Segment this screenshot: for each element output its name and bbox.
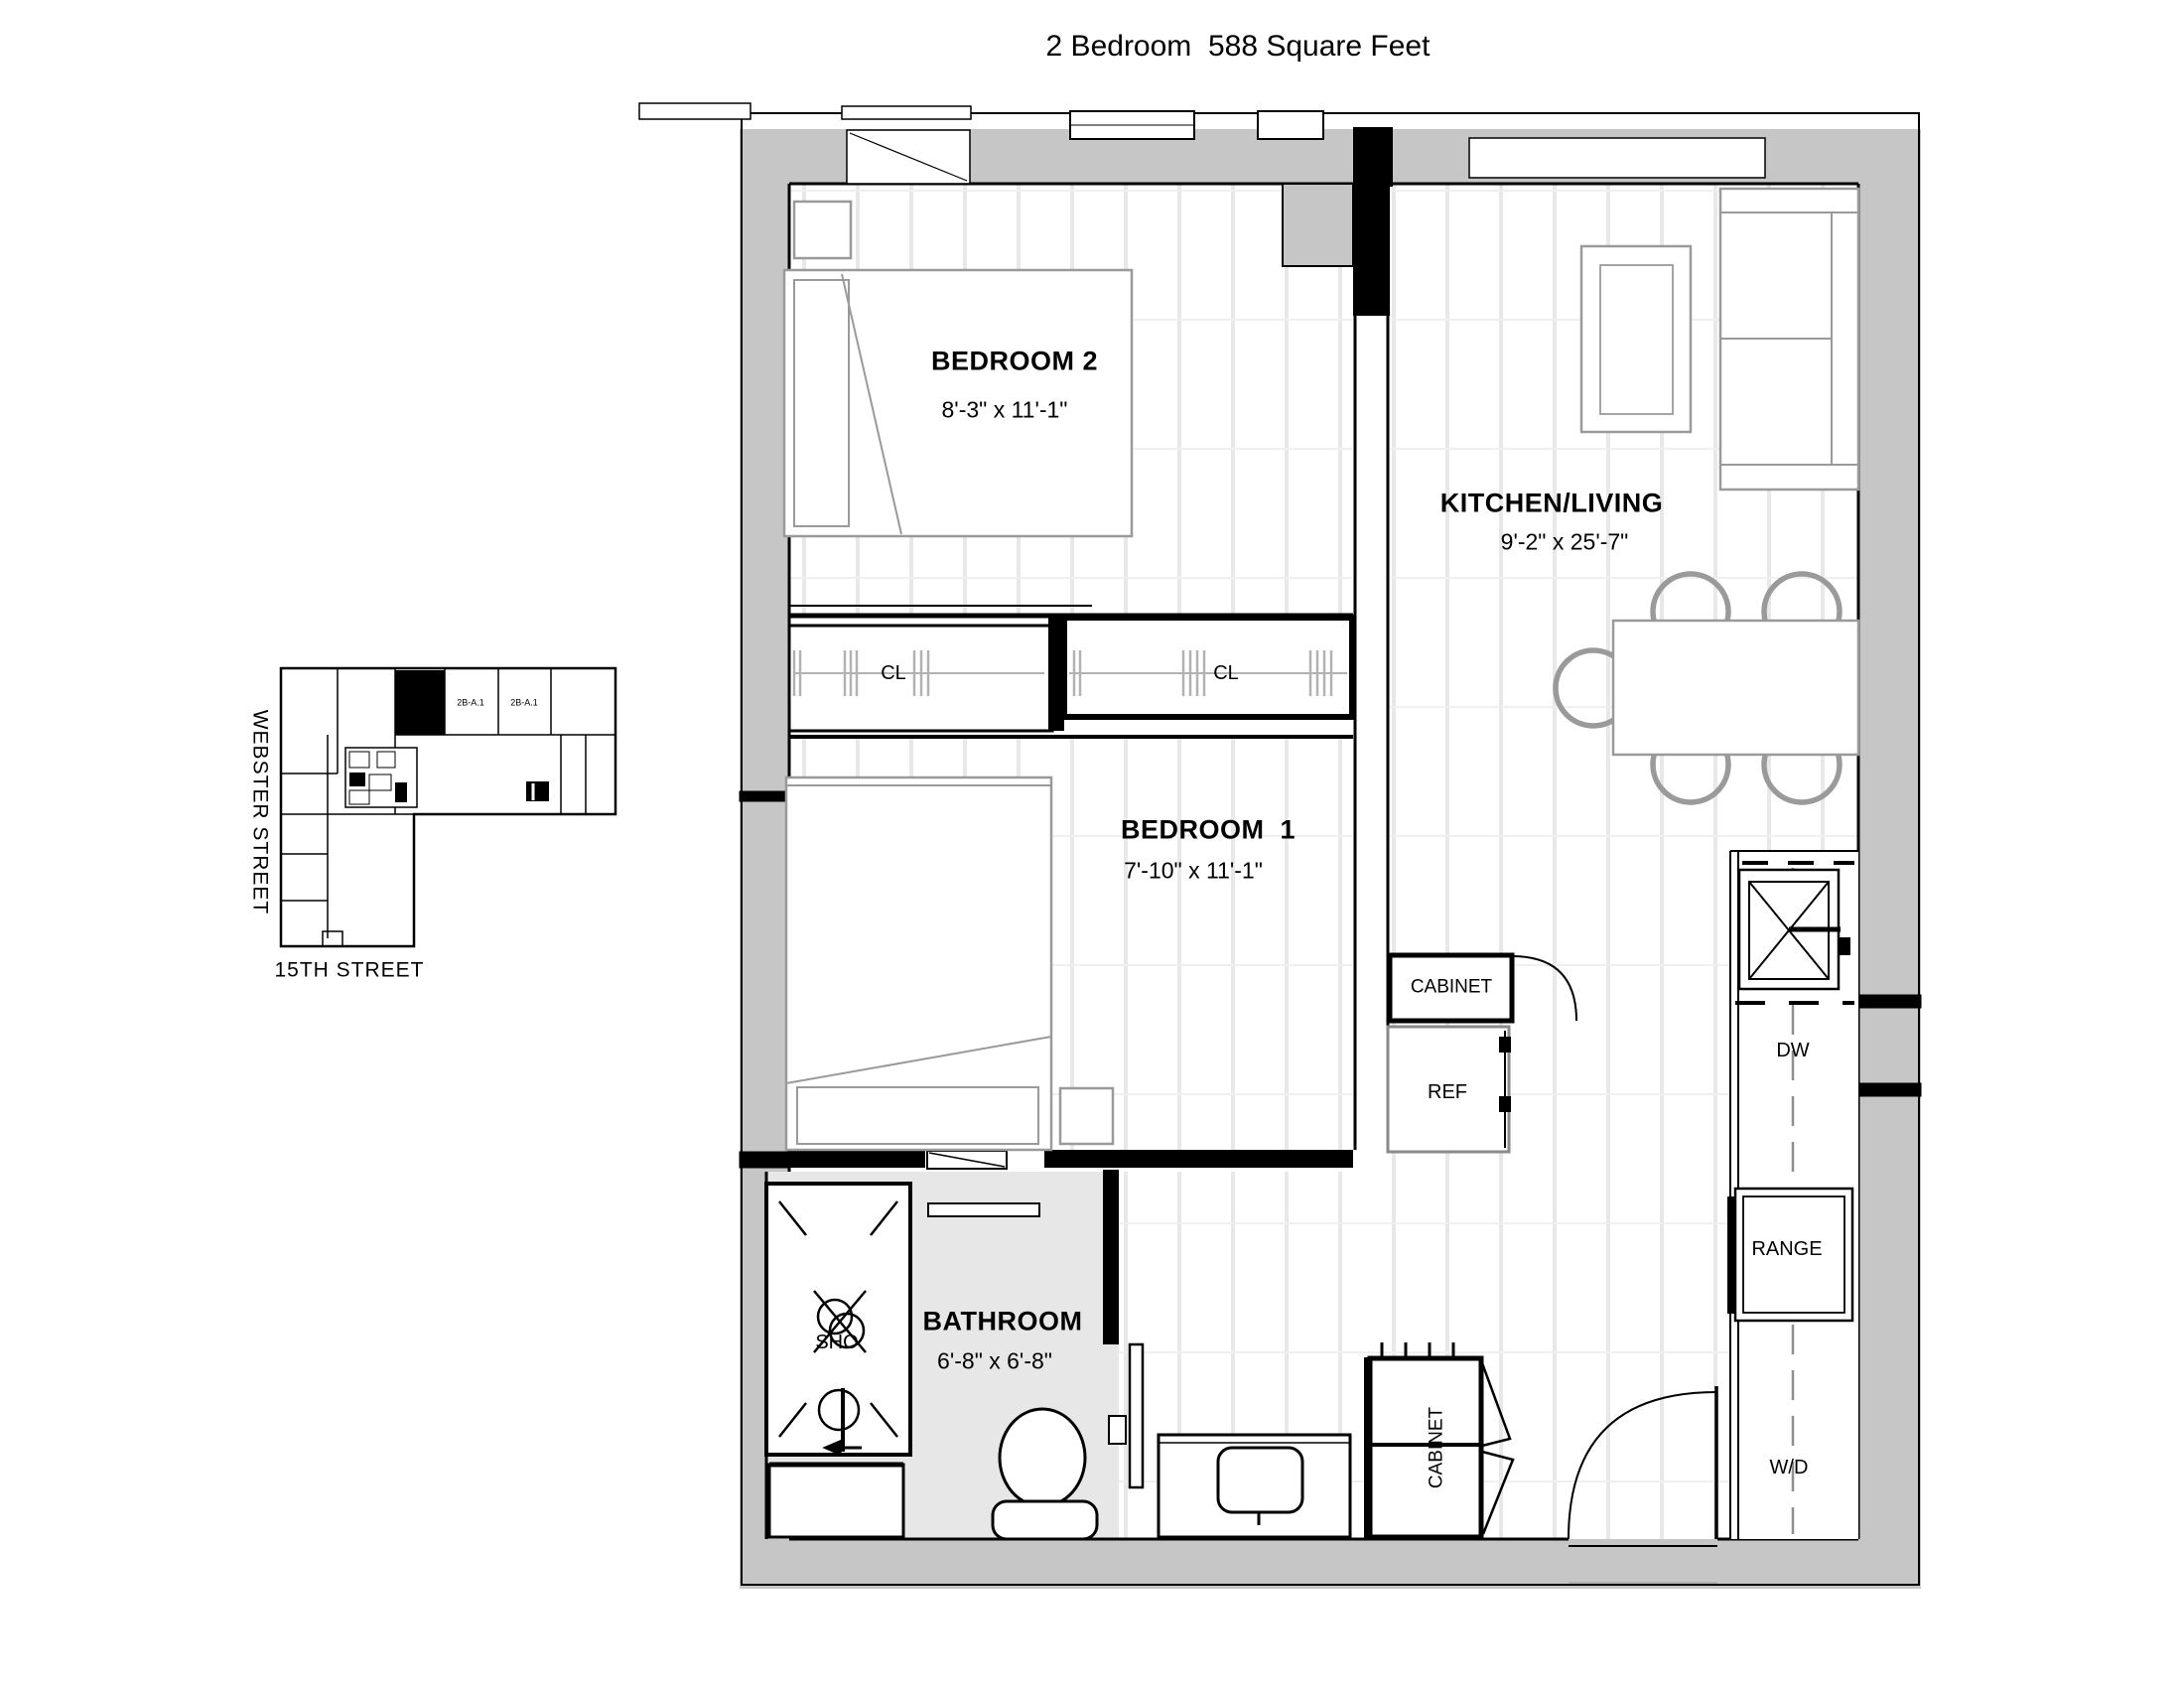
webster-street-label: WEBSTER STREET	[250, 710, 271, 915]
kitchen-wall-solid	[1353, 187, 1390, 316]
fifteenth-street-label: 15TH STREET	[274, 960, 424, 981]
toilet-bowl	[1000, 1409, 1085, 1506]
floor-plan-drawing	[0, 0, 2184, 1688]
shower-label: SHO	[815, 1333, 858, 1352]
wall-bottom	[740, 1539, 1921, 1589]
toilet-tank	[993, 1501, 1097, 1539]
bathroom-shelf	[928, 1203, 1039, 1216]
window-bedroom2-sill	[842, 106, 971, 119]
bed1-mattress	[786, 777, 1051, 1150]
key-plan	[281, 668, 615, 946]
key-plan-highlighted-unit	[395, 670, 445, 735]
window-flush2	[1258, 111, 1323, 139]
closet-right-box	[1064, 618, 1352, 717]
bedroom1-label: BEDROOM 1	[1121, 817, 1296, 844]
cabinet-hall-label: CABINET	[1411, 978, 1492, 997]
ref-handle-top	[1499, 1037, 1511, 1053]
wall-joint-left1	[740, 791, 789, 801]
cabinet-entry-label: CABINET	[1428, 1407, 1446, 1488]
closet-left-label: CL	[881, 663, 906, 683]
dishwasher-label: DW	[1776, 1041, 1809, 1060]
bath-wall-west	[789, 1150, 925, 1168]
bedroom2-label: BEDROOM 2	[931, 349, 1098, 375]
bedroom2-dims: 8'-3" x 11'-1"	[942, 399, 1068, 422]
kitchen-living-dims: 9'-2" x 25'-7"	[1501, 531, 1629, 554]
wall-joint-right2	[1858, 1083, 1921, 1096]
range-handle	[1727, 1196, 1735, 1314]
kitchen-counter	[1727, 851, 1858, 1539]
bathroom-door-leaf	[1130, 1344, 1143, 1487]
hall-sink	[1218, 1448, 1302, 1512]
wall-joint-right1	[1858, 995, 1921, 1008]
key-plan-core-shaft	[349, 773, 365, 786]
plan-title: 2 Bedroom 588 Square Feet	[1046, 32, 1431, 62]
bathroom-label: BATHROOM	[923, 1309, 1083, 1336]
unit-label: 2B-A.1	[457, 699, 484, 708]
shower-drain	[819, 1390, 859, 1430]
wall-right	[1858, 129, 1921, 1589]
range-label: RANGE	[1751, 1239, 1822, 1259]
key-plan-outline	[281, 668, 615, 946]
kitchen-wall-core	[1356, 187, 1387, 1150]
wall-left	[740, 129, 789, 1172]
nightstand	[1060, 1088, 1113, 1144]
window-corner	[639, 103, 751, 119]
faucet-knob	[1839, 937, 1850, 955]
floor-plan-page: 2 Bedroom 588 Square Feet BEDROOM 2 8'-3…	[0, 0, 2184, 1688]
closet-right-label: CL	[1213, 663, 1239, 683]
washer-dryer-label: W/D	[1770, 1458, 1809, 1477]
wall-joint-left2	[740, 1152, 789, 1168]
closets	[789, 618, 1352, 731]
bath-vanity	[769, 1465, 903, 1537]
key-plan-core-shaft	[395, 782, 407, 802]
bath-wall-east	[1044, 1150, 1353, 1168]
kitchen-living-label: KITCHEN/LIVING	[1440, 491, 1664, 517]
window-living	[1469, 138, 1765, 178]
wall-left-bath	[740, 1172, 766, 1589]
unit-label: 2B-A.1	[510, 699, 538, 708]
ref-handle-bottom	[1499, 1096, 1511, 1112]
wall-junction-block	[1353, 127, 1393, 187]
bathroom-dims: 6'-8" x 6'-8"	[937, 1350, 1052, 1373]
refrigerator-label: REF	[1428, 1082, 1467, 1102]
bedroom2-pilaster	[1283, 184, 1353, 266]
key-plan-elevator	[526, 781, 549, 801]
bedroom1-dims: 7'-10" x 11'-1"	[1124, 860, 1263, 883]
coffee-table-outer	[1581, 246, 1691, 432]
bathroom-wall-right	[1103, 1170, 1119, 1344]
nightstand	[794, 202, 851, 258]
dining-table	[1613, 621, 1858, 755]
bathroom-door-handle	[1109, 1416, 1126, 1444]
